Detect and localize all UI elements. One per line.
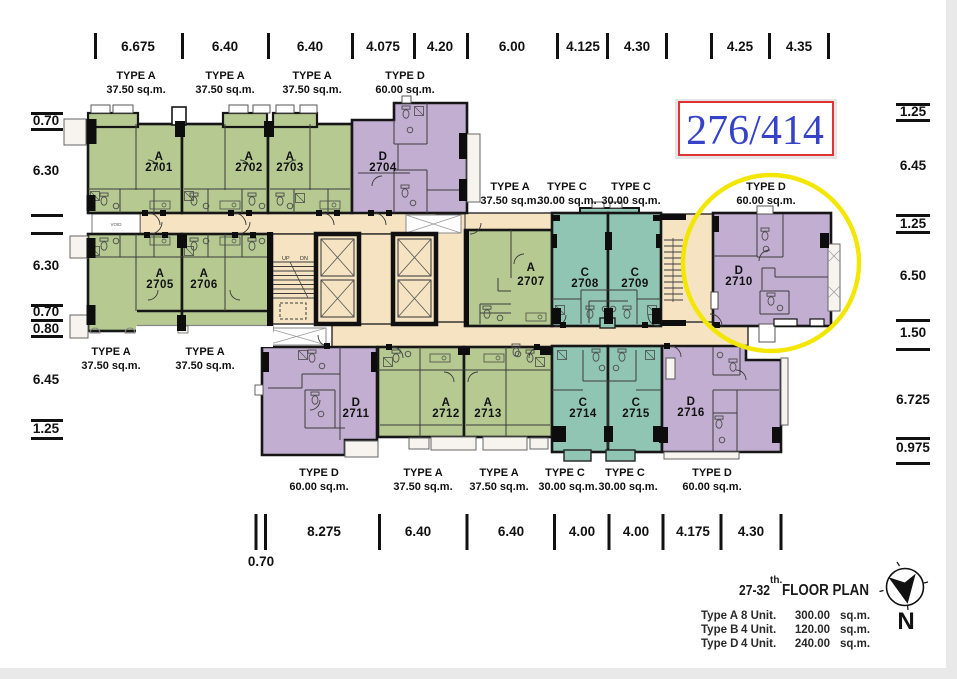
svg-text:2716: 2716 bbox=[677, 407, 705, 419]
svg-text:2705: 2705 bbox=[146, 279, 174, 291]
svg-text:6.00: 6.00 bbox=[499, 39, 525, 54]
svg-text:TYPE A: TYPE A bbox=[205, 70, 244, 82]
svg-text:TYPE A: TYPE A bbox=[403, 467, 442, 479]
svg-text:2715: 2715 bbox=[622, 408, 650, 420]
svg-text:1.25: 1.25 bbox=[900, 216, 927, 231]
svg-text:120.00: 120.00 bbox=[795, 624, 830, 636]
svg-text:2713: 2713 bbox=[474, 408, 502, 420]
svg-text:TYPE D: TYPE D bbox=[299, 467, 339, 479]
svg-text:sq.m.: sq.m. bbox=[840, 624, 870, 636]
svg-text:4.30: 4.30 bbox=[738, 524, 764, 539]
svg-text:60.00 sq.m.: 60.00 sq.m. bbox=[289, 481, 348, 493]
svg-text:1.50: 1.50 bbox=[900, 325, 926, 340]
svg-text:TYPE D: TYPE D bbox=[692, 467, 732, 479]
svg-text:sq.m.: sq.m. bbox=[840, 638, 870, 650]
svg-text:2709: 2709 bbox=[621, 278, 649, 290]
svg-text:60.00 sq.m.: 60.00 sq.m. bbox=[736, 195, 795, 207]
svg-text:240.00: 240.00 bbox=[795, 638, 830, 650]
svg-text:TYPE C: TYPE C bbox=[547, 181, 587, 193]
svg-text:DN: DN bbox=[300, 256, 308, 262]
svg-text:6.675: 6.675 bbox=[121, 39, 155, 54]
svg-text:6.40: 6.40 bbox=[405, 524, 431, 539]
svg-text:2703: 2703 bbox=[276, 162, 304, 174]
svg-text:0.70: 0.70 bbox=[33, 304, 59, 319]
svg-text:0.70: 0.70 bbox=[248, 554, 274, 569]
svg-text:8.275: 8.275 bbox=[307, 524, 341, 539]
svg-text:sq.m.: sq.m. bbox=[840, 610, 870, 622]
svg-text:6.725: 6.725 bbox=[896, 392, 930, 407]
svg-text:0.975: 0.975 bbox=[896, 440, 930, 455]
svg-text:TYPE A: TYPE A bbox=[292, 70, 331, 82]
svg-text:4.20: 4.20 bbox=[427, 39, 453, 54]
svg-text:30.00 sq.m.: 30.00 sq.m. bbox=[538, 481, 597, 493]
svg-text:TYPE A: TYPE A bbox=[490, 181, 529, 193]
svg-text:2706: 2706 bbox=[190, 279, 218, 291]
svg-text:1.25: 1.25 bbox=[33, 421, 60, 436]
svg-text:2714: 2714 bbox=[569, 408, 597, 420]
svg-text:TYPE A: TYPE A bbox=[479, 467, 518, 479]
svg-text:6.30: 6.30 bbox=[33, 163, 59, 178]
svg-text:4.00: 4.00 bbox=[569, 524, 595, 539]
svg-text:TYPE A: TYPE A bbox=[91, 346, 130, 358]
svg-text:6.40: 6.40 bbox=[212, 39, 238, 54]
svg-text:TYPE C: TYPE C bbox=[605, 467, 645, 479]
svg-text:4.075: 4.075 bbox=[366, 39, 400, 54]
svg-text:4 Unit.: 4 Unit. bbox=[741, 638, 776, 650]
svg-text:Type A: Type A bbox=[701, 610, 738, 622]
svg-text:4.125: 4.125 bbox=[566, 39, 600, 54]
svg-text:4.175: 4.175 bbox=[676, 524, 710, 539]
svg-text:TYPE A: TYPE A bbox=[116, 70, 155, 82]
svg-text:37.50 sq.m.: 37.50 sq.m. bbox=[282, 84, 341, 96]
svg-text:6.45: 6.45 bbox=[33, 372, 60, 387]
svg-text:2701: 2701 bbox=[145, 162, 173, 174]
svg-text:th.: th. bbox=[770, 575, 782, 586]
svg-text:TYPE D: TYPE D bbox=[746, 181, 786, 193]
svg-text:A: A bbox=[527, 262, 536, 274]
svg-text:37.50 sq.m.: 37.50 sq.m. bbox=[393, 481, 452, 493]
svg-text:37.50 sq.m.: 37.50 sq.m. bbox=[81, 360, 140, 372]
svg-text:60.00 sq.m.: 60.00 sq.m. bbox=[375, 84, 434, 96]
svg-text:TYPE C: TYPE C bbox=[545, 467, 585, 479]
svg-text:4.00: 4.00 bbox=[623, 524, 649, 539]
svg-text:2708: 2708 bbox=[571, 278, 599, 290]
svg-text:UP: UP bbox=[282, 256, 290, 262]
svg-text:6.30: 6.30 bbox=[33, 258, 59, 273]
svg-text:2712: 2712 bbox=[432, 408, 460, 420]
svg-text:2707: 2707 bbox=[517, 276, 545, 288]
svg-text:FLOOR PLAN: FLOOR PLAN bbox=[782, 582, 869, 599]
svg-text:2704: 2704 bbox=[369, 162, 397, 174]
svg-text:37.50 sq.m.: 37.50 sq.m. bbox=[106, 84, 165, 96]
svg-text:4.30: 4.30 bbox=[624, 39, 650, 54]
svg-text:30.00 sq.m.: 30.00 sq.m. bbox=[598, 481, 657, 493]
svg-text:0.80: 0.80 bbox=[33, 321, 59, 336]
svg-text:6.45: 6.45 bbox=[900, 158, 927, 173]
svg-text:2702: 2702 bbox=[235, 162, 263, 174]
svg-text:2711: 2711 bbox=[343, 408, 370, 420]
svg-text:1.25: 1.25 bbox=[900, 104, 927, 119]
svg-text:30.00 sq.m.: 30.00 sq.m. bbox=[537, 195, 596, 207]
svg-text:37.50 sq.m.: 37.50 sq.m. bbox=[175, 360, 234, 372]
svg-text:37.50 sq.m.: 37.50 sq.m. bbox=[195, 84, 254, 96]
svg-text:30.00 sq.m.: 30.00 sq.m. bbox=[601, 195, 660, 207]
svg-text:37.50 sq.m.: 37.50 sq.m. bbox=[469, 481, 528, 493]
svg-text:6.40: 6.40 bbox=[297, 39, 323, 54]
svg-text:6.50: 6.50 bbox=[900, 268, 926, 283]
svg-text:TYPE A: TYPE A bbox=[185, 346, 224, 358]
svg-text:Type D: Type D bbox=[701, 638, 739, 650]
svg-text:27-32: 27-32 bbox=[739, 583, 770, 599]
svg-text:37.50 sq.m.: 37.50 sq.m. bbox=[480, 195, 539, 207]
svg-text:Type B: Type B bbox=[701, 624, 739, 636]
svg-text:276/414: 276/414 bbox=[686, 108, 824, 154]
svg-text:6.40: 6.40 bbox=[498, 524, 524, 539]
svg-text:0.70: 0.70 bbox=[33, 113, 59, 128]
svg-text:VOID: VOID bbox=[110, 222, 122, 227]
svg-text:4 Unit.: 4 Unit. bbox=[741, 624, 776, 636]
svg-text:300.00: 300.00 bbox=[795, 610, 830, 622]
svg-text:4.25: 4.25 bbox=[727, 39, 754, 54]
svg-text:2710: 2710 bbox=[725, 276, 753, 288]
svg-text:60.00 sq.m.: 60.00 sq.m. bbox=[682, 481, 741, 493]
svg-text:TYPE C: TYPE C bbox=[611, 181, 651, 193]
svg-text:4.35: 4.35 bbox=[786, 39, 813, 54]
svg-text:N: N bbox=[897, 608, 914, 635]
svg-text:8 Unit.: 8 Unit. bbox=[741, 610, 776, 622]
svg-text:TYPE D: TYPE D bbox=[385, 70, 425, 82]
